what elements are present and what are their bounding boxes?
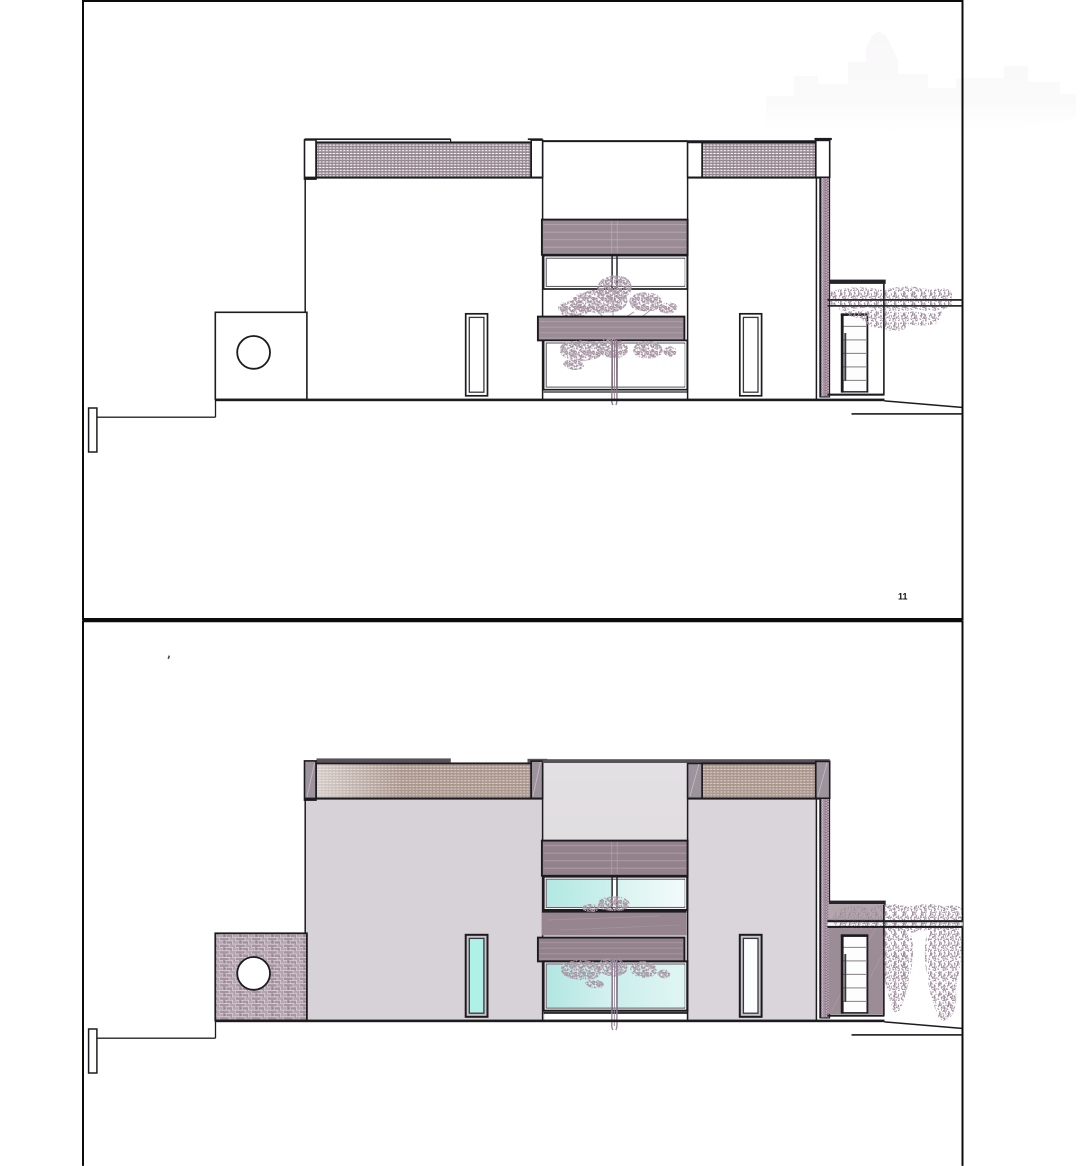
svg-text:11: 11	[898, 592, 908, 602]
